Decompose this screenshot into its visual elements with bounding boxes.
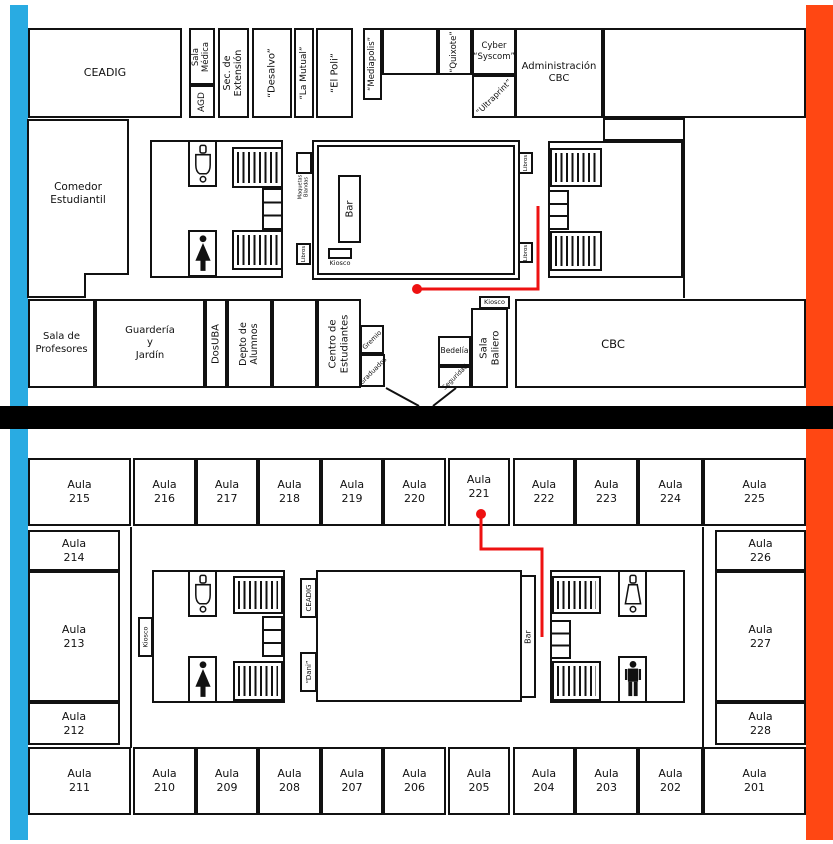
- room-label: Guardería y Jardín: [125, 325, 175, 363]
- room-aula-211: Aula 211: [28, 747, 131, 815]
- room-label: DosUBA: [210, 323, 222, 363]
- room-unlabeled-shop: [382, 28, 438, 75]
- room-mediapolis: “Mediapolis”: [363, 28, 382, 100]
- room-label: “La Mutual”: [299, 46, 309, 99]
- room-dosuba: DosUBA: [205, 299, 227, 388]
- steps-icon: [262, 616, 283, 657]
- room-aula-212: Aula 212: [28, 702, 120, 745]
- room-label: Cyber “Syscom”: [473, 41, 515, 62]
- room-agd: AGD: [189, 85, 215, 118]
- room-graduados: Graduados: [360, 354, 385, 387]
- room-aula-205: Aula 205: [448, 747, 510, 815]
- room-label: “Quixote”: [450, 31, 460, 72]
- libros-stand-box: Libros: [518, 242, 533, 263]
- floor2-restroom-men-box: [188, 570, 217, 617]
- room-sala-medica: Sala Médica: [189, 28, 215, 85]
- room-label: Centro de Estudiantes: [328, 314, 351, 373]
- bar-tab: Bar: [520, 575, 536, 698]
- stairs-icon: [233, 576, 283, 614]
- funnel-left-wall: [386, 388, 419, 406]
- room-cbc-label: CBC: [563, 331, 663, 357]
- room-aula-213: Aula 213: [28, 571, 120, 702]
- dani-tab: “Dani”: [300, 652, 317, 692]
- kiosco-stand-label: Kiosco: [318, 259, 362, 268]
- left-edge-bar-floor1: [10, 5, 28, 406]
- room-label: Depto de Alumnos: [239, 322, 261, 366]
- women-restroom-icon: [192, 234, 214, 274]
- room-ultraprint: “Ultraprint”: [472, 75, 516, 118]
- room-sala-de-profesores: Sala de Profesores: [28, 299, 95, 388]
- room-aula-214: Aula 214: [28, 530, 120, 571]
- room-label: Kiosco: [484, 298, 505, 306]
- room-aula-204: Aula 204: [513, 747, 575, 815]
- steps-icon: [548, 190, 569, 230]
- kiosco-stand-box: [328, 248, 352, 259]
- room-aula-207: Aula 207: [321, 747, 383, 815]
- room-unlabeled-small: [603, 118, 685, 141]
- room-aula-202: Aula 202: [638, 747, 703, 815]
- room-bedelia: Bedelía: [438, 336, 471, 366]
- room-desalvo: “Desalvo”: [252, 28, 292, 118]
- room-aula-224: Aula 224: [638, 458, 703, 526]
- room-aula-215: Aula 215: [28, 458, 131, 526]
- room-seguridad: Seguridad: [438, 366, 471, 388]
- room-label: AGD: [197, 92, 207, 112]
- ceadig-tab: CEADIG: [300, 578, 317, 618]
- women-restroom-outline-icon: [622, 574, 644, 614]
- stairs-icon: [550, 231, 602, 271]
- room-administracion-cbc: Administración CBC: [515, 28, 603, 118]
- libros-stand-box: Libros: [296, 243, 311, 265]
- stairs-icon: [232, 230, 283, 270]
- room-label: “Mediapolis”: [368, 37, 378, 91]
- room-label: Sala Baliero: [478, 331, 501, 366]
- room-bar: Bar: [338, 175, 361, 243]
- steps-icon: [550, 620, 571, 659]
- room-aula-201: Aula 201: [703, 747, 806, 815]
- stairs-icon: [550, 148, 602, 187]
- steps-icon: [262, 188, 283, 230]
- room-aula-217: Aula 217: [196, 458, 258, 526]
- room-unlabeled-right: [603, 28, 806, 118]
- kiosco-tab: Kiosco: [138, 617, 153, 657]
- maquetas-stand-label: Maquetas Blandas: [282, 168, 326, 206]
- room-quixote: “Quixote”: [438, 28, 472, 75]
- stairs-icon: [233, 661, 283, 701]
- floor-plan-canvas: CEADIG Sala Médica AGD Sec. de Extensión…: [0, 0, 833, 844]
- room-aula-227: Aula 227: [715, 571, 806, 702]
- room-aula-226: Aula 226: [715, 530, 806, 571]
- room-aula-221: Aula 221: [448, 458, 510, 526]
- floor1-restroom-women-box: [188, 230, 217, 277]
- room-comedor-estudiantil: Comedor Estudiantil: [28, 168, 128, 220]
- room-aula-209: Aula 209: [196, 747, 258, 815]
- room-cyber-syscom: Cyber “Syscom”: [472, 28, 516, 75]
- stairs-icon: [232, 147, 283, 188]
- men-restroom-icon: [622, 660, 644, 700]
- floor2-central-hall: [316, 570, 522, 702]
- men-restroom-outline-icon: [192, 144, 214, 184]
- room-kiosco: Kiosco: [479, 296, 510, 309]
- room-aula-222: Aula 222: [513, 458, 575, 526]
- left-edge-bar-floor2: [10, 429, 28, 840]
- floor2-restroom-women-box: [188, 656, 217, 703]
- women-restroom-icon: [192, 660, 214, 700]
- floor2-restroom-women-box-right: [618, 570, 647, 617]
- room-aula-219: Aula 219: [321, 458, 383, 526]
- room-aula-208: Aula 208: [258, 747, 321, 815]
- room-label: Sala de Profesores: [35, 331, 87, 356]
- room-aula-206: Aula 206: [383, 747, 446, 815]
- floor1-restroom-men-box: [188, 140, 217, 187]
- room-guarderia-y-jardin: Guardería y Jardín: [95, 299, 205, 388]
- room-label: Administración CBC: [522, 61, 597, 86]
- room-label: Seguridad: [440, 362, 469, 391]
- room-label: “Ultraprint”: [474, 77, 513, 116]
- room-label: Bar: [344, 200, 356, 217]
- libros-stand-box: Libros: [518, 152, 533, 174]
- room-label: Bedelía: [441, 346, 469, 355]
- room-label: Gremio: [361, 328, 383, 350]
- room-label: Sec. de Extensión: [223, 50, 245, 97]
- floor2-restroom-men-box-right: [618, 656, 647, 703]
- room-el-poli: “El Poli”: [316, 28, 353, 118]
- room-label: Comedor Estudiantil: [50, 181, 106, 207]
- room-aula-223: Aula 223: [575, 458, 638, 526]
- room-label: “El Poli”: [329, 53, 341, 93]
- room-la-mutual: “La Mutual”: [294, 28, 314, 118]
- room-aula-218: Aula 218: [258, 458, 321, 526]
- room-label: Sala Médica: [192, 41, 212, 71]
- room-sala-baliero: Sala Baliero: [471, 308, 508, 388]
- room-label: “Desalvo”: [266, 48, 278, 98]
- room-unlabeled-bottom: [272, 299, 317, 388]
- room-aula-225: Aula 225: [703, 458, 806, 526]
- room-aula-210: Aula 210: [133, 747, 196, 815]
- men-restroom-outline-icon: [192, 574, 214, 614]
- room-label: Graduados: [357, 355, 388, 386]
- room-aula-220: Aula 220: [383, 458, 446, 526]
- room-aula-228: Aula 228: [715, 702, 806, 745]
- room-depto-de-alumnos: Depto de Alumnos: [227, 299, 272, 388]
- room-label: CEADIG: [84, 66, 126, 80]
- room-aula-203: Aula 203: [575, 747, 638, 815]
- stairs-icon: [552, 576, 601, 614]
- right-edge-bar-floor1: [806, 5, 833, 406]
- route-start-dot-floor1: [412, 284, 422, 294]
- room-sec-extension: Sec. de Extensión: [218, 28, 249, 118]
- room-aula-216: Aula 216: [133, 458, 196, 526]
- room-centro-de-estudiantes: Centro de Estudiantes: [317, 299, 361, 388]
- room-gremio: Gremio: [360, 325, 384, 354]
- room-ceadig: CEADIG: [28, 28, 182, 118]
- right-edge-bar-floor2: [806, 429, 833, 840]
- stairs-icon: [552, 661, 601, 701]
- floor-divider-band: [0, 406, 833, 429]
